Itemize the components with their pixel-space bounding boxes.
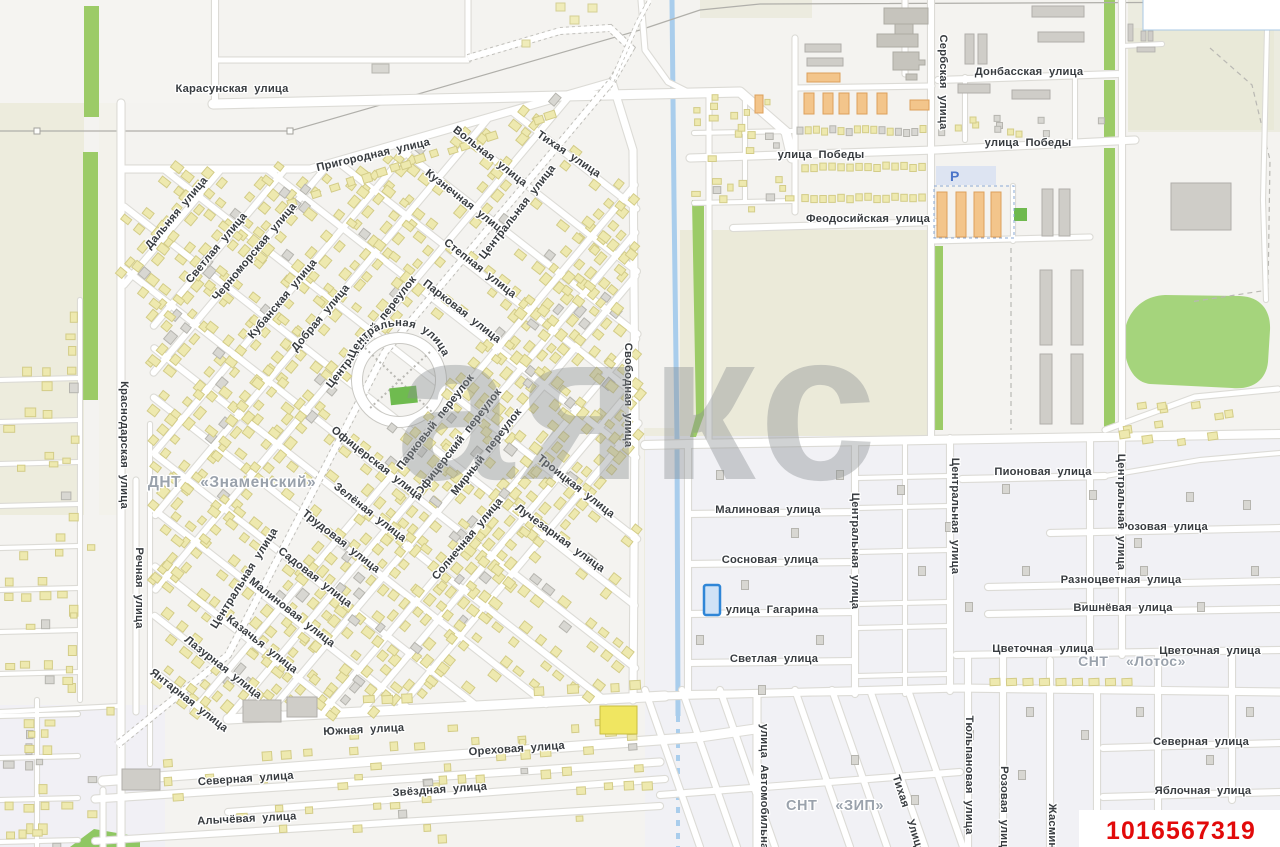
svg-text:улица Победы: улица Победы [985,137,1072,149]
svg-text:1016567319: 1016567319 [1106,817,1256,845]
svg-text:аякс: аякс [396,287,883,524]
svg-text:Розовая улица: Розовая улица [1120,521,1208,533]
svg-text:Центральная улица: Центральная улица [949,458,961,575]
svg-text:улица Победы: улица Победы [778,149,865,161]
svg-text:Тюльпановая улица: Тюльпановая улица [963,715,975,835]
svg-text:улица Автомобильная: улица Автомобильная [758,724,770,847]
svg-text:Светлая улица: Светлая улица [730,653,819,665]
svg-text:Сербская улица: Сербская улица [937,35,949,131]
svg-text:Феодосийская улица: Феодосийская улица [806,213,931,225]
svg-text:Р: Р [950,168,959,184]
svg-text:Донбасская улица: Донбасская улица [975,66,1084,78]
svg-text:Розовая улица: Розовая улица [998,766,1010,847]
svg-text:улица Гагарина: улица Гагарина [726,604,819,616]
svg-text:Речная улица: Речная улица [133,547,145,629]
svg-text:Разноцветная улица: Разноцветная улица [1061,574,1182,586]
svg-text:Сосновая улица: Сосновая улица [722,554,819,566]
svg-text:Карасунская улица: Карасунская улица [175,83,289,95]
svg-text:ДНТ «Знаменский»: ДНТ «Знаменский» [148,474,316,491]
svg-text:Вишнёвая улица: Вишнёвая улица [1073,602,1173,614]
svg-text:Центральная улица: Центральная улица [1115,454,1127,571]
svg-text:Северная улица: Северная улица [1153,736,1250,748]
svg-text:СНТ «ЗИП»: СНТ «ЗИП» [786,798,884,814]
svg-text:Яблочная улица: Яблочная улица [1155,785,1252,797]
svg-text:СНТ «Лотос»: СНТ «Лотос» [1078,653,1186,669]
svg-text:Краснодарская улица: Краснодарская улица [118,381,130,509]
svg-text:Пионовая улица: Пионовая улица [994,466,1092,478]
svg-text:Жасминовая: Жасминовая [1046,803,1058,847]
